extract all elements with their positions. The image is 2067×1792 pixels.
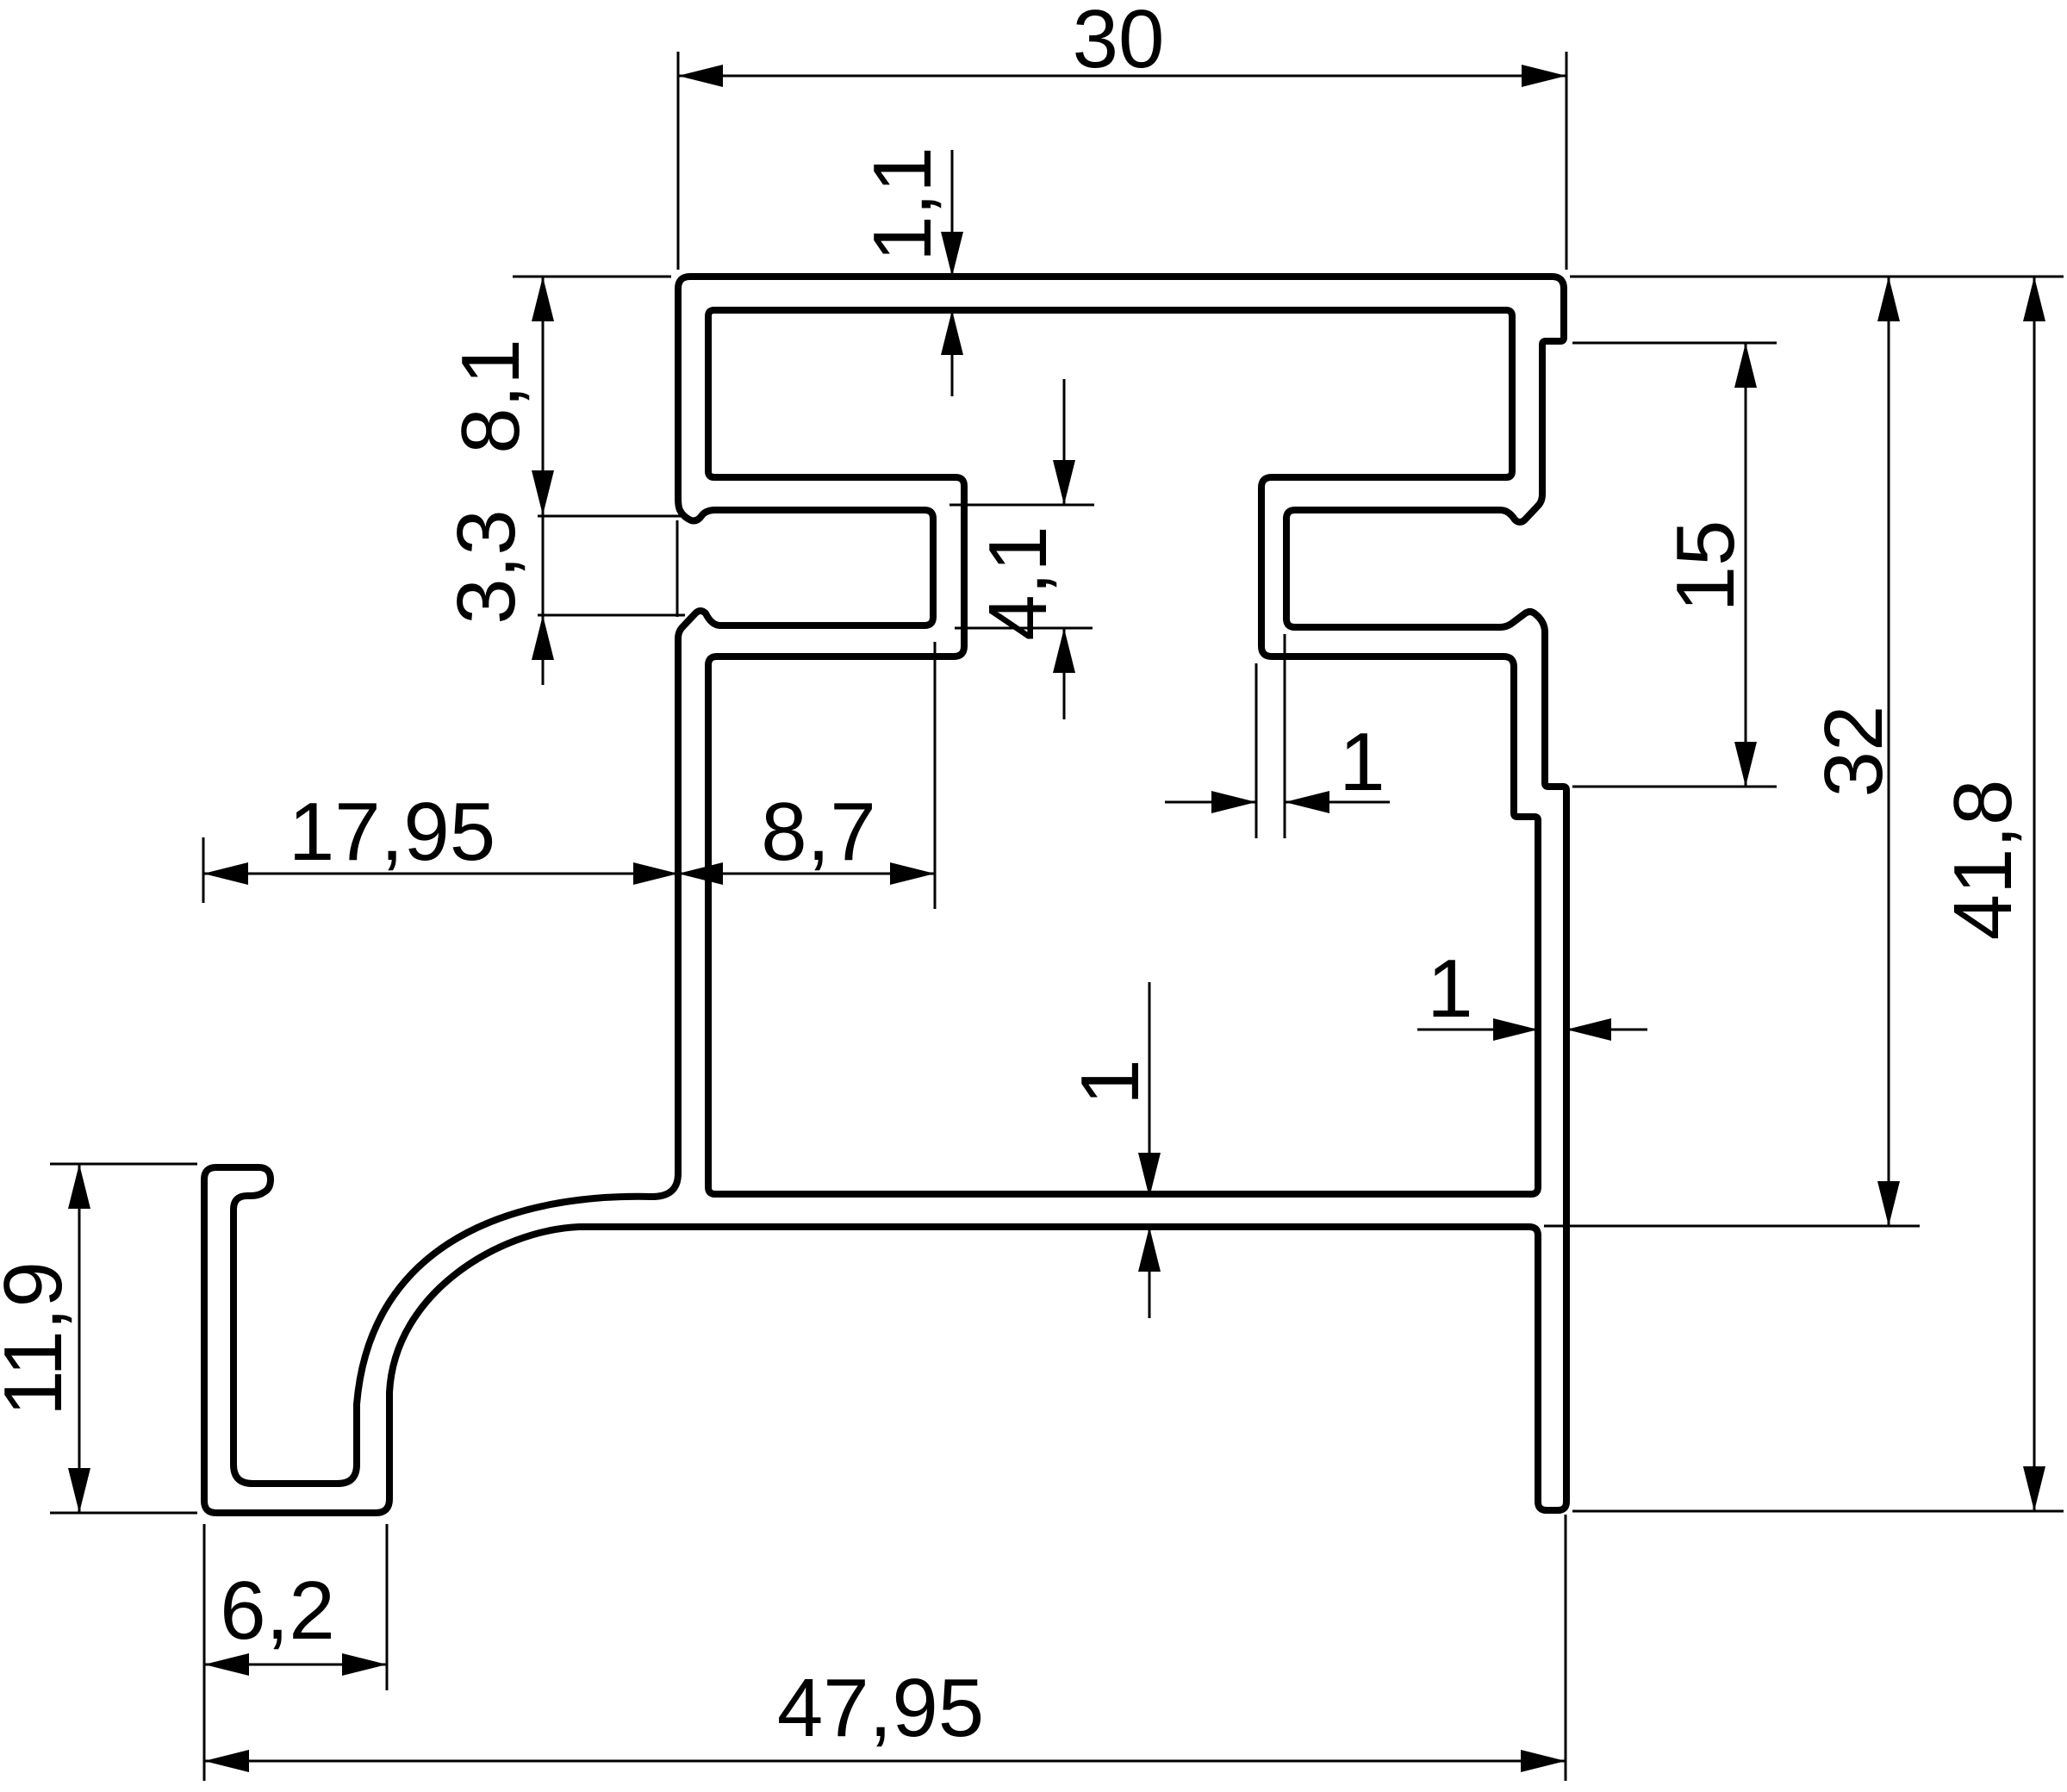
svg-text:1: 1 xyxy=(1427,943,1472,1035)
svg-text:17,95: 17,95 xyxy=(289,786,495,878)
svg-text:3,3: 3,3 xyxy=(440,509,532,624)
svg-text:32: 32 xyxy=(1808,706,1900,798)
svg-text:41,8: 41,8 xyxy=(1937,780,2029,941)
svg-text:30: 30 xyxy=(1073,0,1165,85)
svg-text:15: 15 xyxy=(1659,520,1752,613)
svg-text:11,9: 11,9 xyxy=(0,1261,79,1416)
svg-text:1,1: 1,1 xyxy=(856,146,949,261)
svg-text:47,95: 47,95 xyxy=(777,1662,984,1754)
svg-text:4,1: 4,1 xyxy=(972,526,1064,640)
svg-text:8,1: 8,1 xyxy=(445,339,537,453)
svg-text:1: 1 xyxy=(1339,716,1385,808)
svg-text:6,2: 6,2 xyxy=(220,1565,334,1657)
svg-text:8,7: 8,7 xyxy=(761,786,875,878)
svg-text:1: 1 xyxy=(1064,1059,1156,1104)
